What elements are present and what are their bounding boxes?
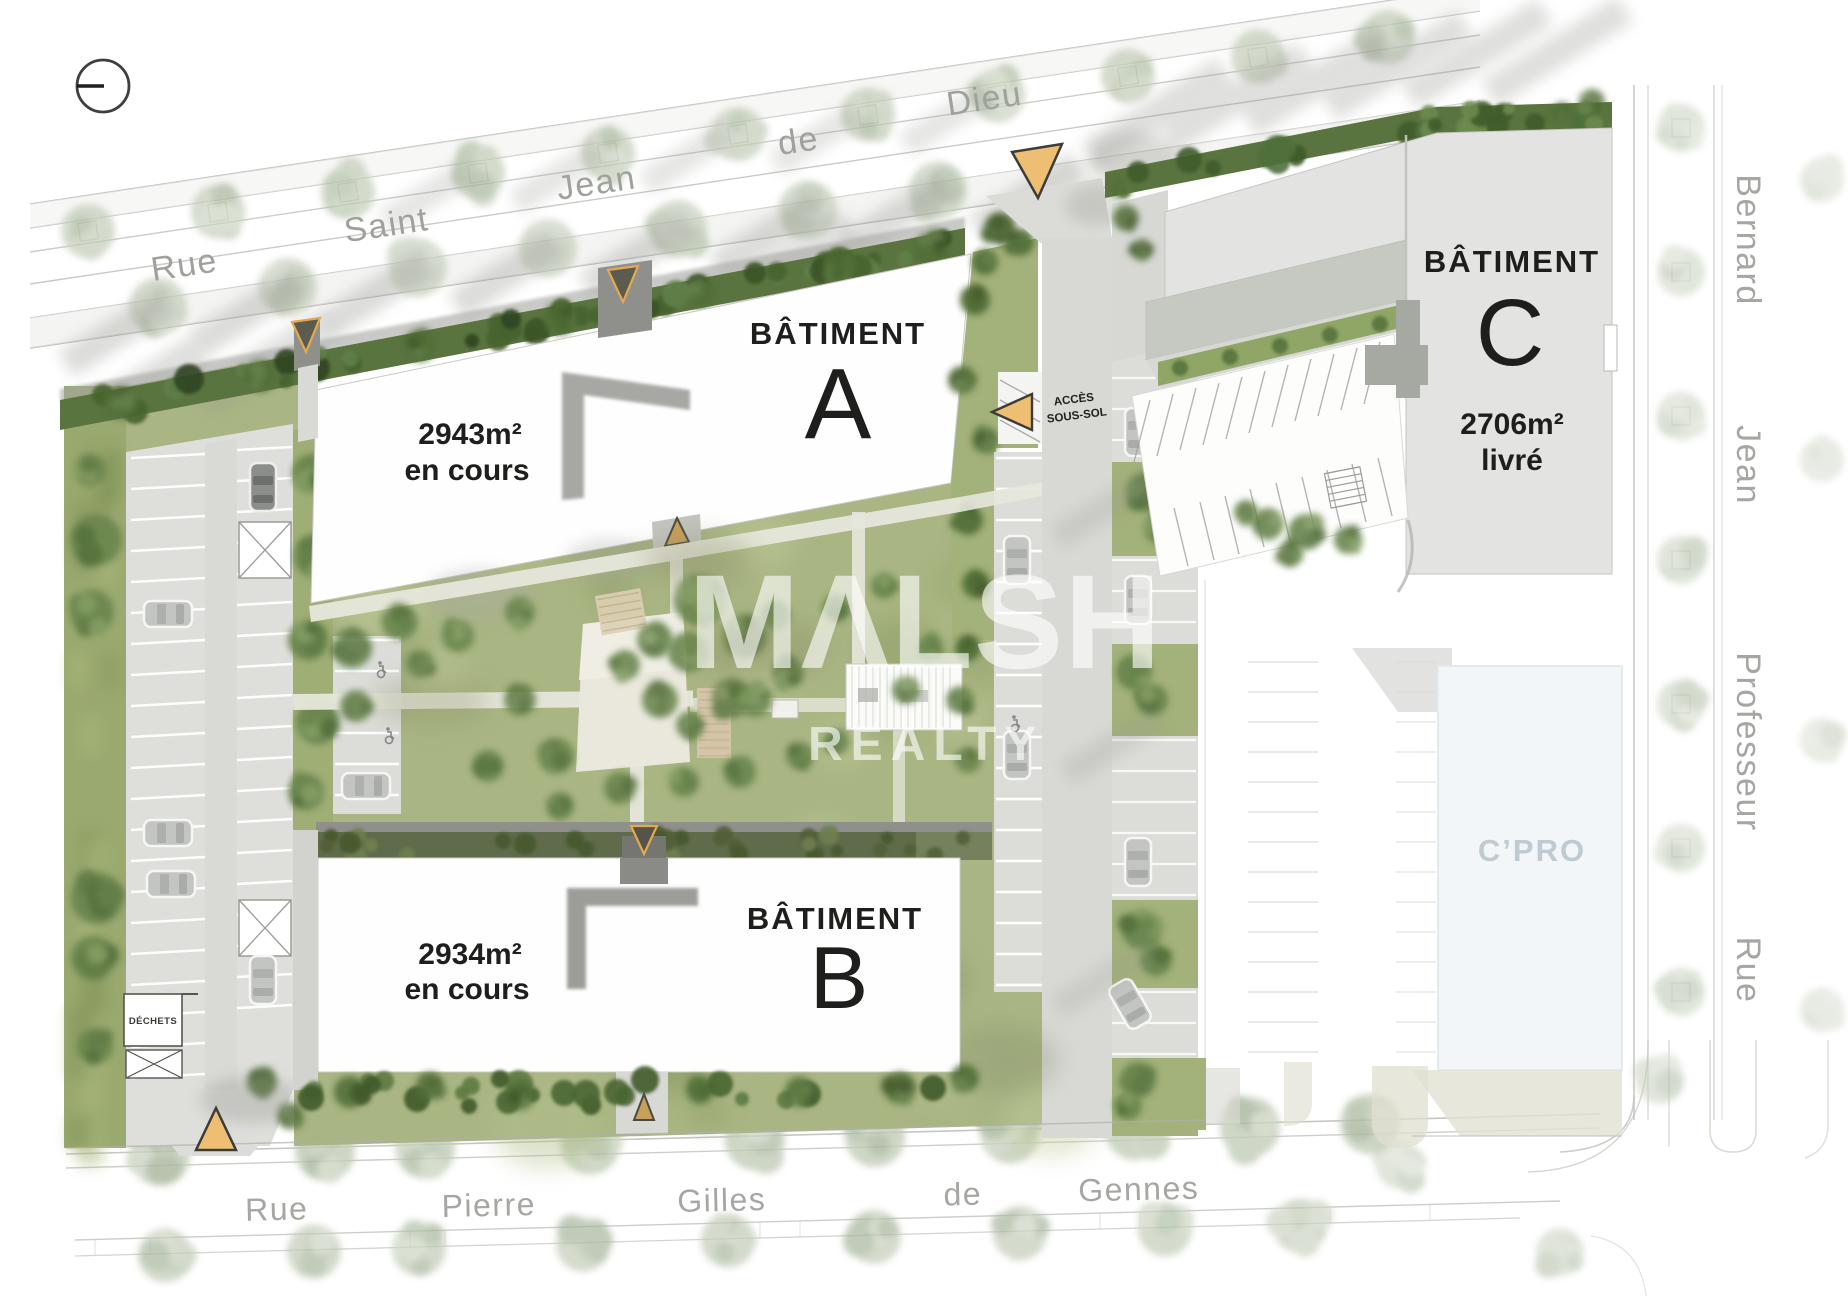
svg-text:MΛLSH: MΛLSH [688, 548, 1162, 697]
svg-text:DÉCHETS: DÉCHETS [129, 1016, 177, 1027]
svg-text:de: de [775, 119, 821, 163]
svg-text:Pierre: Pierre [441, 1186, 536, 1224]
svg-text:Rue: Rue [1729, 937, 1767, 1004]
svg-text:en cours: en cours [404, 454, 529, 487]
svg-text:Rue: Rue [245, 1190, 309, 1227]
svg-text:BÂTIMENT: BÂTIMENT [750, 315, 926, 351]
svg-text:2934m²: 2934m² [418, 938, 521, 971]
svg-text:livré: livré [1481, 444, 1543, 477]
svg-text:Jean: Jean [1729, 425, 1767, 505]
svg-text:Gennes: Gennes [1078, 1170, 1200, 1209]
svg-text:C: C [1476, 280, 1545, 386]
svg-text:B: B [810, 928, 869, 1027]
svg-text:REALTY: REALTY [808, 718, 1044, 771]
svg-text:en cours: en cours [404, 973, 529, 1006]
svg-text:A: A [805, 348, 872, 460]
svg-text:2943m²: 2943m² [418, 418, 521, 451]
svg-text:de: de [943, 1176, 982, 1213]
svg-text:Gilles: Gilles [677, 1181, 767, 1219]
svg-text:Professeur: Professeur [1729, 652, 1767, 831]
svg-text:C’PRO: C’PRO [1478, 833, 1586, 868]
svg-text:Bernard: Bernard [1729, 174, 1767, 305]
svg-text:BÂTIMENT: BÂTIMENT [1424, 243, 1600, 279]
svg-text:2706m²: 2706m² [1460, 408, 1563, 441]
